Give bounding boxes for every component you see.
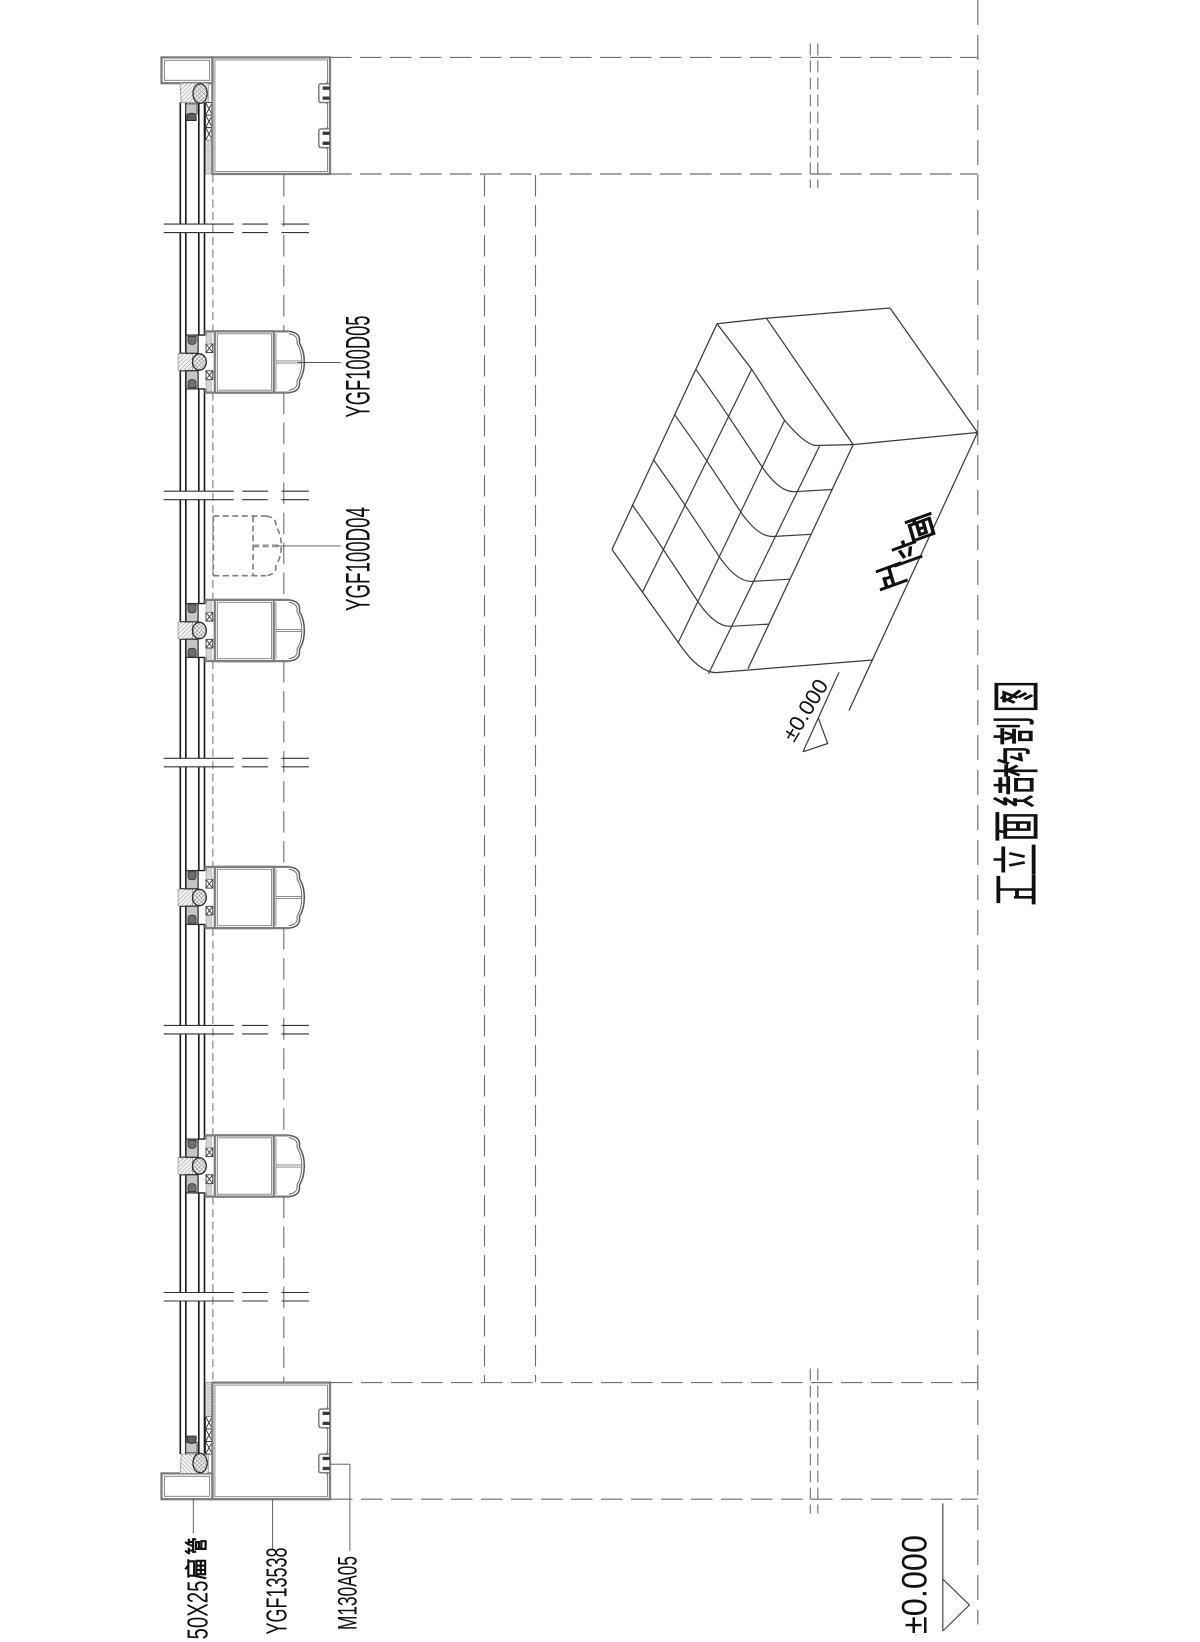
svg-text:YGF100D04: YGF100D04 bbox=[340, 507, 378, 611]
svg-text:±0.000: ±0.000 bbox=[896, 1535, 935, 1634]
svg-text:M130A05: M130A05 bbox=[333, 1556, 363, 1630]
svg-text:YGF13538: YGF13538 bbox=[262, 1548, 294, 1635]
svg-text:50X25: 50X25 bbox=[183, 1581, 215, 1640]
svg-text:YGF100D05: YGF100D05 bbox=[340, 316, 378, 418]
